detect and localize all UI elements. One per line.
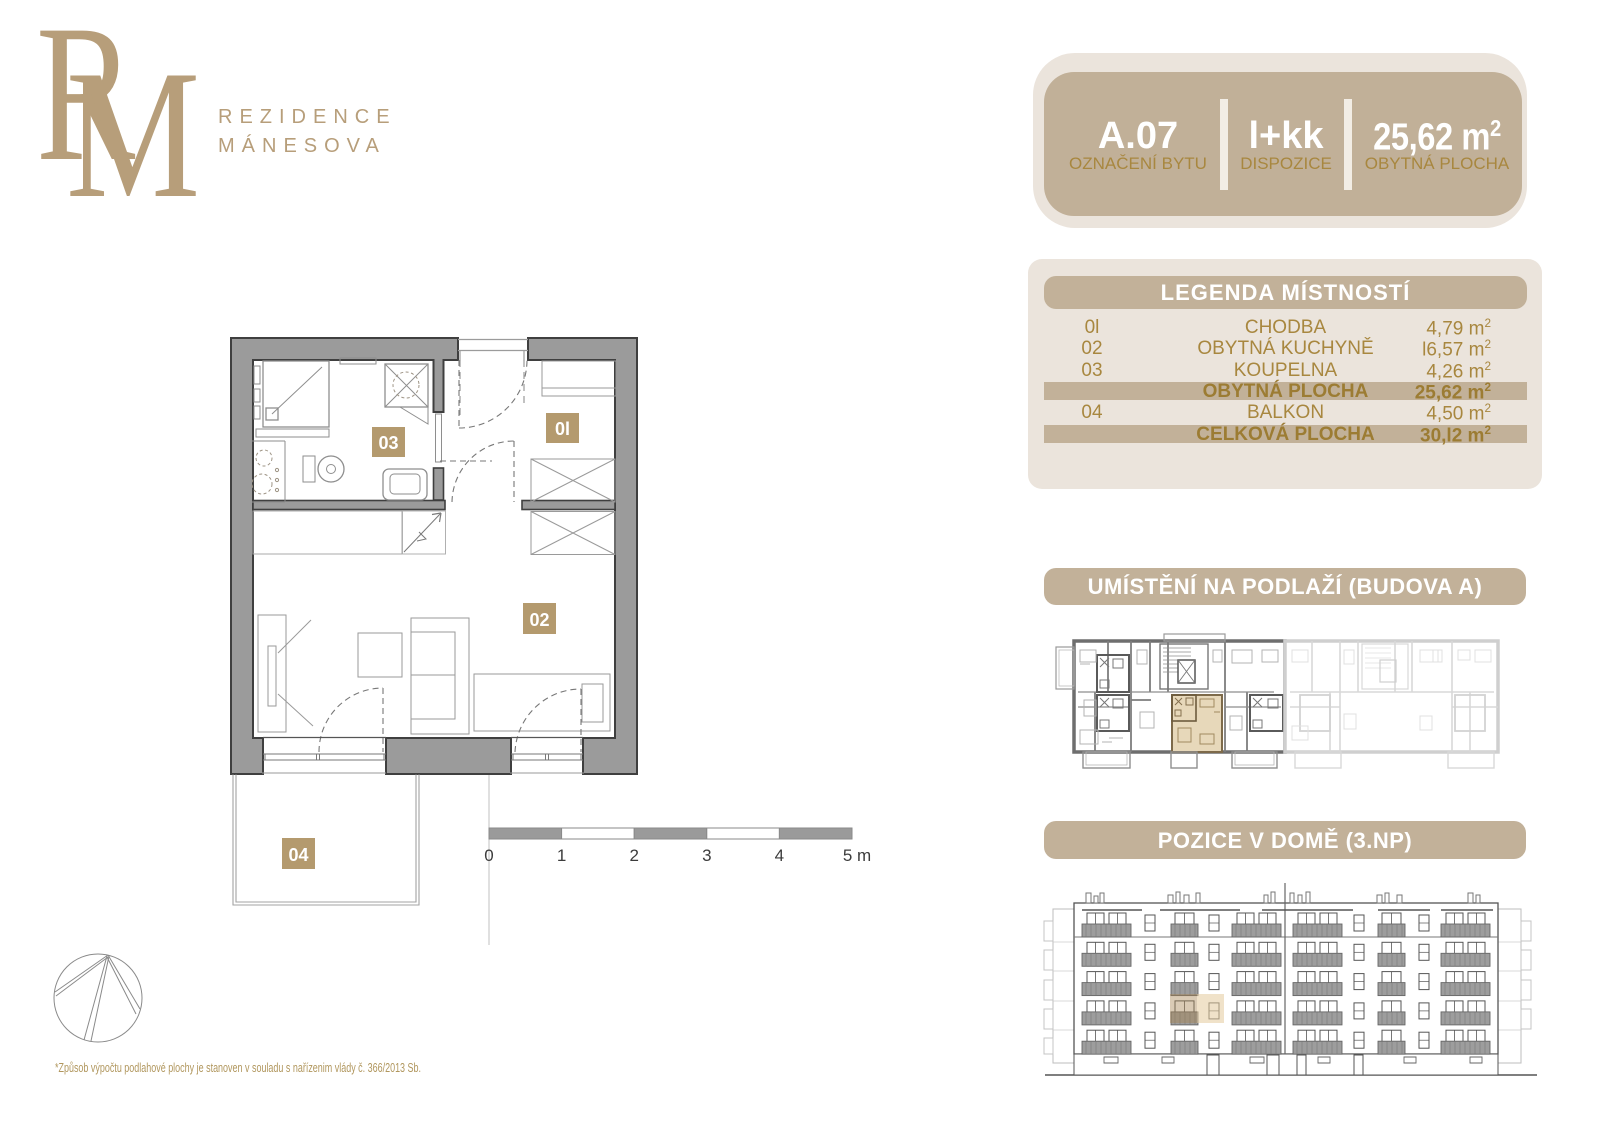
svg-text:2: 2 [629, 846, 638, 865]
svg-text:0: 0 [484, 846, 493, 865]
svg-text:03: 03 [378, 433, 398, 453]
svg-text:04: 04 [288, 845, 308, 865]
svg-text:02: 02 [529, 610, 549, 630]
svg-text:0l: 0l [555, 419, 570, 439]
svg-text:3: 3 [702, 846, 711, 865]
svg-text:5 m: 5 m [843, 846, 871, 865]
svg-text:4: 4 [775, 846, 784, 865]
svg-text:1: 1 [557, 846, 566, 865]
